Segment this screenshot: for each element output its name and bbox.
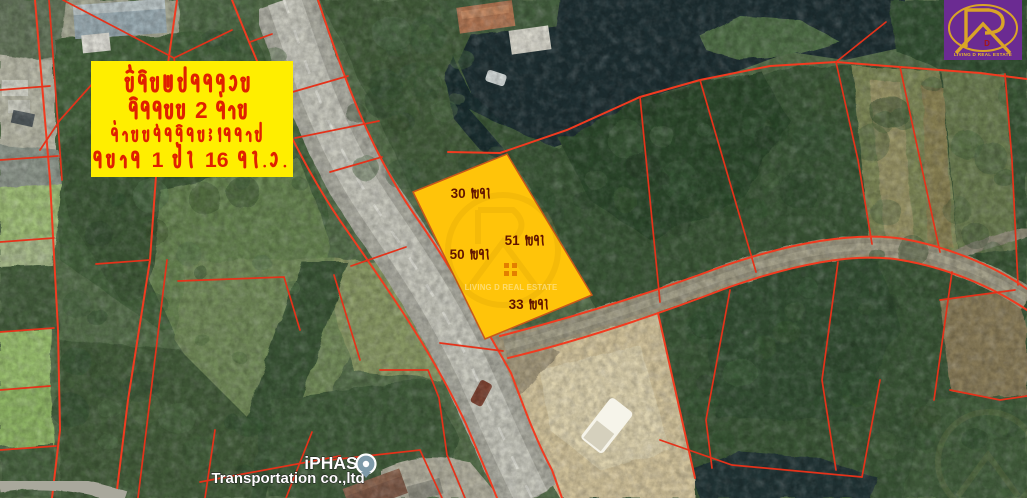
- svg-text:Transportation co.,ltd: Transportation co.,ltd: [211, 470, 364, 487]
- svg-text:51: 51: [505, 233, 521, 248]
- svg-text:16: 16: [205, 148, 229, 172]
- svg-text:LIVING D REAL ESTATE: LIVING D REAL ESTATE: [954, 52, 1012, 57]
- svg-text:1: 1: [152, 148, 164, 172]
- svg-text:33: 33: [509, 297, 525, 312]
- svg-text:LIVING D REAL ESTATE: LIVING D REAL ESTATE: [465, 283, 558, 292]
- svg-text:30: 30: [451, 186, 466, 201]
- svg-text:50: 50: [450, 247, 465, 262]
- svg-text:2: 2: [195, 97, 208, 123]
- svg-text:D: D: [984, 39, 990, 48]
